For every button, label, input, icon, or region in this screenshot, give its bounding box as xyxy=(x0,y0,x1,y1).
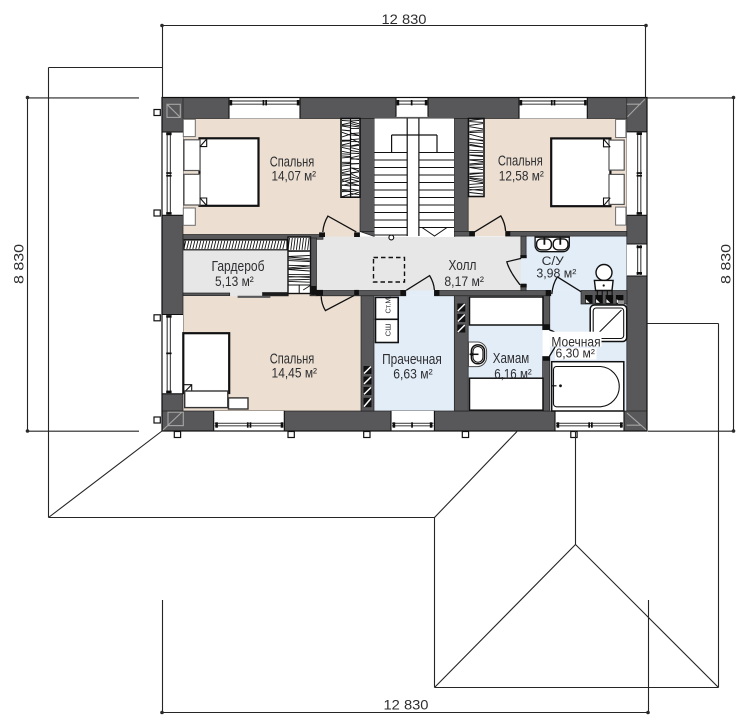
svg-text:СШ: СШ xyxy=(384,323,393,336)
svg-text:6,16 м²: 6,16 м² xyxy=(494,365,532,381)
svg-text:Холл: Холл xyxy=(449,257,477,274)
svg-text:8,17 м²: 8,17 м² xyxy=(444,273,484,289)
svg-text:14,07 м²: 14,07 м² xyxy=(272,167,317,183)
svg-text:12 830: 12 830 xyxy=(384,697,429,713)
svg-text:12,58 м²: 12,58 м² xyxy=(499,167,544,183)
svg-text:14,45 м²: 14,45 м² xyxy=(272,365,318,381)
svg-text:6,30 м²: 6,30 м² xyxy=(556,345,596,360)
svg-text:5,13 м²: 5,13 м² xyxy=(215,273,254,289)
svg-text:8 830: 8 830 xyxy=(717,244,733,284)
svg-text:8 830: 8 830 xyxy=(11,244,27,284)
svg-text:Ст.М.: Ст.М. xyxy=(384,296,393,314)
svg-text:12 830: 12 830 xyxy=(382,11,427,27)
svg-text:6,63 м²: 6,63 м² xyxy=(393,366,433,382)
svg-text:3,98 м²: 3,98 м² xyxy=(536,265,577,280)
